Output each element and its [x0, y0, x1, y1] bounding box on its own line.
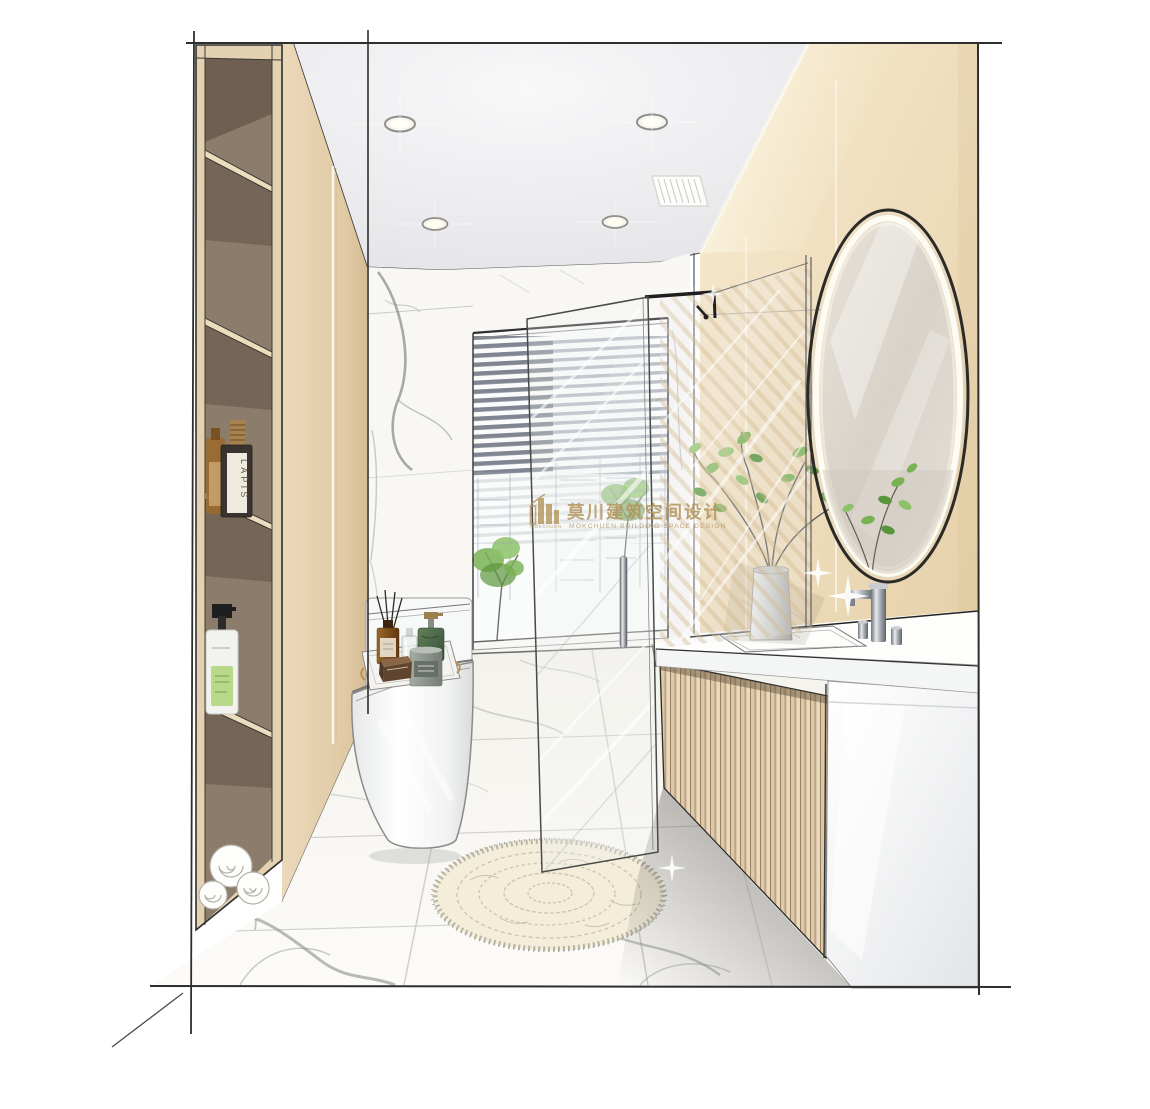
bathroom-rendering: LAPIS: [0, 0, 1150, 1109]
rendering-canvas: LAPIS: [0, 0, 1150, 1109]
candle: [410, 647, 442, 686]
shower-head: [704, 315, 709, 320]
vent-grille: [652, 176, 708, 206]
soap-bar: [379, 656, 412, 682]
lapis-label: LAPIS: [239, 459, 249, 501]
vanity: [616, 610, 978, 988]
vanity-white-panel: [824, 681, 978, 988]
shower-door: [527, 297, 658, 872]
door-handle: [620, 556, 627, 648]
shelving-unit: LAPIS: [196, 45, 282, 930]
toilet-shadow: [369, 848, 461, 864]
